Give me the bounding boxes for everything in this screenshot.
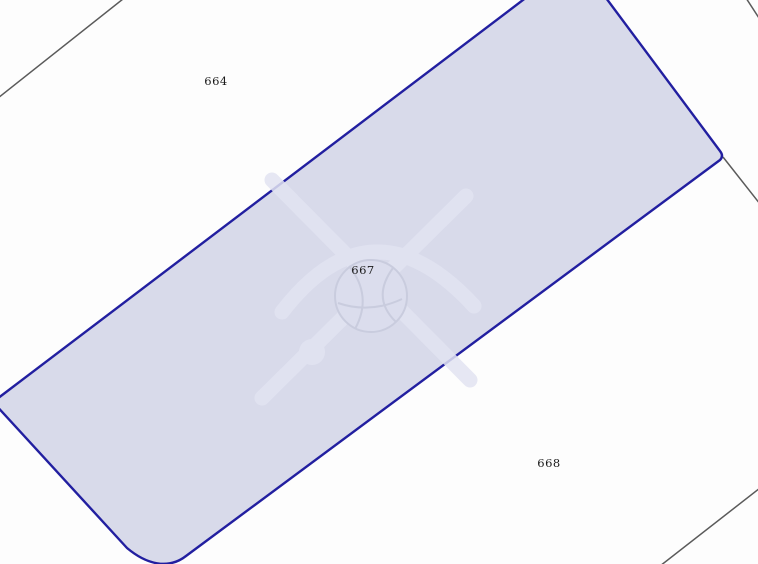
watermark-bar-tip [299,339,325,365]
parcel-label-667: 667 [351,263,374,277]
cadastral-map[interactable]: 664 667 668 [0,0,758,564]
parcel-label-664: 664 [204,74,227,88]
parcel-label-668: 668 [537,456,560,470]
